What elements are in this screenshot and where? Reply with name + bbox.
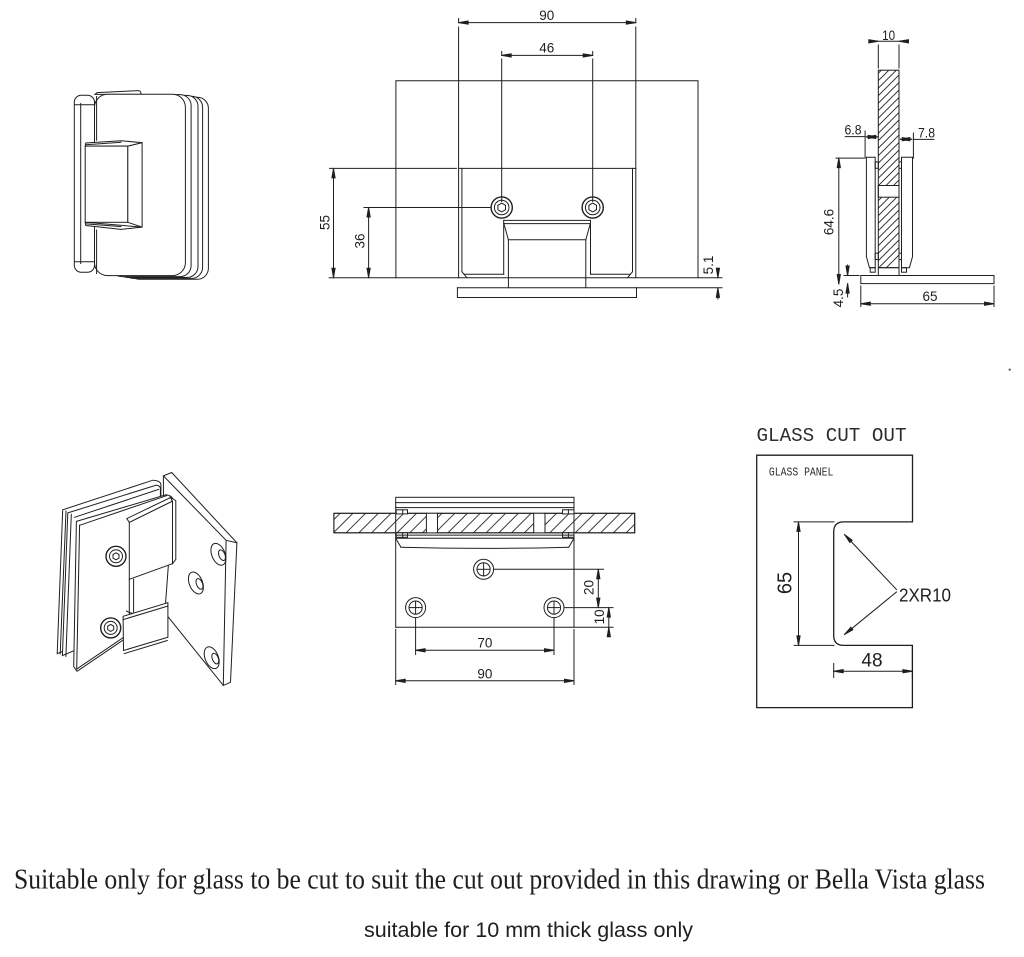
svg-text:5.1: 5.1 [701,256,716,275]
svg-text:Suitable only for glass to be: Suitable only for glass to be cut to sui… [14,864,985,896]
svg-text:2XR10: 2XR10 [899,586,951,606]
svg-text:65: 65 [922,289,937,304]
svg-text:70: 70 [477,636,492,651]
svg-text:64.6: 64.6 [822,209,837,235]
svg-text:55: 55 [318,215,333,230]
svg-text:6.8: 6.8 [845,123,862,138]
svg-text:10: 10 [882,28,895,43]
svg-text:GLASS PANEL: GLASS PANEL [769,465,834,479]
svg-text:10: 10 [592,609,607,624]
svg-text:4.5: 4.5 [831,289,846,308]
svg-text:46: 46 [539,41,554,56]
svg-text:GLASS CUT OUT: GLASS CUT OUT [757,425,907,447]
svg-text:36: 36 [353,233,368,248]
svg-text:90: 90 [539,8,554,23]
svg-text:suitable for 10 mm thick glass: suitable for 10 mm thick glass only [364,919,694,942]
svg-text:90: 90 [477,666,492,681]
svg-text:48: 48 [861,651,882,672]
svg-text:20: 20 [581,580,596,595]
svg-text:7.8: 7.8 [918,125,935,140]
svg-text:65: 65 [775,572,797,594]
